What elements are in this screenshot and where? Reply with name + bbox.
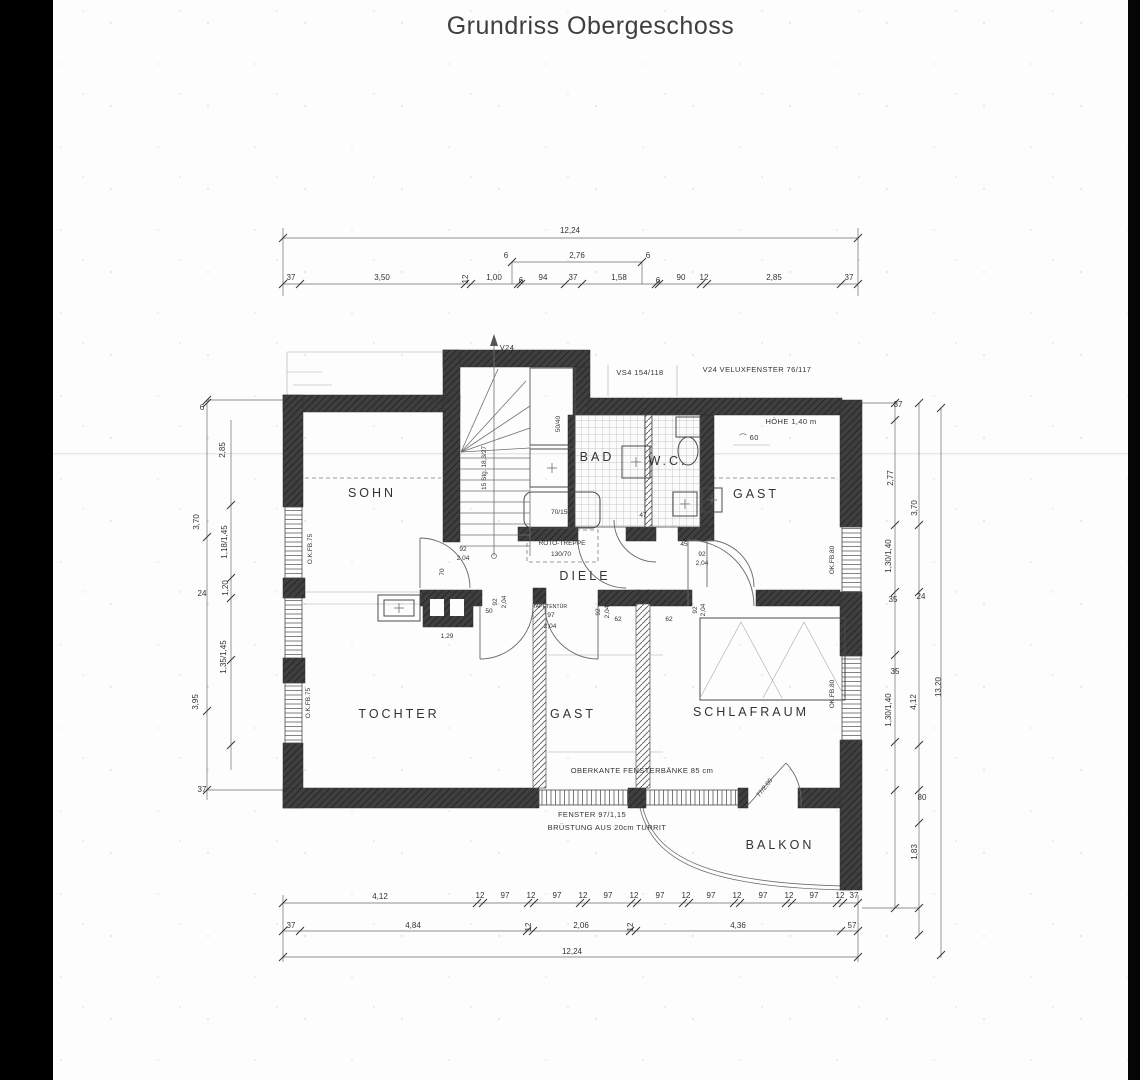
dim-label: 6 <box>656 276 661 285</box>
dim-label: 6 <box>504 251 509 260</box>
dim-label: 12 <box>836 891 845 900</box>
annotation-label: BRÜSTUNG AUS 20cm TURRIT <box>548 823 667 832</box>
room-label-diele: DIELE <box>559 569 610 583</box>
dim-label: 12 <box>476 891 485 900</box>
tiled-floor <box>575 415 645 527</box>
dim-label: 6 <box>519 276 524 285</box>
dim-label: 1,30/1,40 <box>884 539 893 573</box>
dim-label: 50/40 <box>555 415 562 432</box>
dim-label: 1,35/1,45 <box>219 640 228 674</box>
annotation-label: 50/60 <box>431 396 452 405</box>
window-radiator <box>285 507 302 578</box>
dim-label: O.K.FB.75 <box>305 687 312 718</box>
dim-label: 6 <box>646 251 651 260</box>
dim-label: 12 <box>700 273 709 282</box>
room-label-wc: W.C. <box>648 454 687 468</box>
dim-label: 130/70 <box>551 551 571 558</box>
room-label-schlafraum: SCHLAFRAUM <box>693 705 809 719</box>
dim-label: 2,04 <box>457 555 470 562</box>
dim-label: 37 <box>845 273 854 282</box>
dim-label: 37 <box>287 921 296 930</box>
dim-label: 2,04 <box>544 623 557 630</box>
dim-label: 6 <box>200 403 205 412</box>
dim-label: 12,24 <box>562 947 583 956</box>
dim-label: 35 <box>891 667 900 676</box>
dim-label: O.K.FB.75 <box>307 533 314 564</box>
window-radiator <box>842 527 861 592</box>
dim-label: 12 <box>579 891 588 900</box>
dim-label: 15 Stg. 18,3/27 <box>481 446 488 490</box>
dim-label: 37 <box>287 273 296 282</box>
dim-label: 37 <box>569 273 578 282</box>
dim-label: 37 <box>894 400 903 409</box>
dim-label: 97 <box>707 891 716 900</box>
floorplan-drawing: 50/60V24VS4 154/118V24 VELUXFENSTER 76/1… <box>0 0 1140 1080</box>
dim-label: 90 <box>677 273 686 282</box>
annotation-label: OBERKANTE FENSTERBÄNKE 85 cm <box>571 766 713 775</box>
dim-label: 97 <box>810 891 819 900</box>
dim-label: 12 <box>630 891 639 900</box>
dim-label: 57 <box>848 921 857 930</box>
dim-label: 12 <box>785 891 794 900</box>
dim-label: 2,04 <box>501 595 508 608</box>
dim-label: 1,83 <box>910 844 919 860</box>
room-label-tochter: TOCHTER <box>358 707 439 721</box>
dim-label: 97 <box>501 891 510 900</box>
dim-label: OK.FB.80 <box>829 545 836 574</box>
dim-label: 2,04 <box>700 603 707 616</box>
dim-label: 94 <box>539 273 548 282</box>
dim-label: 24 <box>917 592 926 601</box>
dim-label: 35 <box>889 595 898 604</box>
dim-label: OK.FB.80 <box>829 679 836 708</box>
annotation-label: TAPETENTÜR <box>533 603 567 610</box>
dim-label: 2,04 <box>604 605 611 618</box>
dim-label: 92 <box>459 546 467 553</box>
window-radiator <box>285 683 302 743</box>
dim-label: 97 <box>656 891 665 900</box>
dim-label: 13,20 <box>934 676 943 697</box>
room-label-gast: GAST <box>733 487 779 501</box>
paper-speckle <box>53 0 1128 1080</box>
room-label-gast: GAST <box>550 707 596 721</box>
dim-label: 70 <box>439 568 446 576</box>
dim-label: 12 <box>682 891 691 900</box>
dim-label: 3,95 <box>191 694 200 710</box>
dim-label: 2,06 <box>573 921 589 930</box>
dim-label: 12 <box>461 274 470 283</box>
dim-label: 92 <box>698 551 706 558</box>
annotation-label: V24 <box>500 343 515 352</box>
annotation-label: V24 VELUXFENSTER 76/117 <box>703 365 812 374</box>
dim-label: 12 <box>524 922 533 931</box>
dim-label: 37 <box>198 785 207 794</box>
dim-label: 50 <box>485 608 493 615</box>
dim-label: 47 <box>639 512 647 519</box>
dim-label: 62 <box>614 616 622 623</box>
room-label-balkon: BALKON <box>746 838 815 852</box>
dim-label: 3,70 <box>910 500 919 516</box>
dim-label: 12 <box>527 891 536 900</box>
room-label-sohn: SOHN <box>348 486 396 500</box>
window-radiator <box>285 598 302 658</box>
dim-label: 92 <box>595 608 602 616</box>
dim-label: 4,36 <box>730 921 746 930</box>
dim-label: 4,12 <box>909 694 918 710</box>
dim-label: 1,30/1,40 <box>884 693 893 727</box>
dim-label: 92 <box>492 598 499 606</box>
dim-label: 70/150 <box>551 509 571 516</box>
window-radiator <box>539 790 628 805</box>
dim-label: 62 <box>665 616 673 623</box>
window-radiator <box>646 790 738 805</box>
dim-label: 80 <box>918 793 927 802</box>
annotation-label: FENSTER 97/1,15 <box>558 810 626 819</box>
dim-label: 2,77 <box>886 470 895 486</box>
dim-label: 1,20 <box>221 580 230 596</box>
dim-label: 37 <box>850 891 859 900</box>
annotation-label: HÖHE 1,40 m <box>765 417 816 426</box>
dim-label: 1,58 <box>611 273 627 282</box>
dim-label: 12 <box>626 922 635 931</box>
dim-label: 97 <box>604 891 613 900</box>
dim-label: 1,00 <box>486 273 502 282</box>
dim-label: 12 <box>733 891 742 900</box>
room-label-bad: BAD <box>580 450 615 464</box>
annotation-label: ⌒ 60 <box>739 433 759 442</box>
dim-label: 1,18/1,45 <box>220 525 229 559</box>
dim-label: 1,29 <box>441 633 454 640</box>
dim-label: 45 <box>680 541 688 548</box>
scanned-floorplan-page: Grundriss Obergeschoss <box>0 0 1140 1080</box>
dim-label: 2,85 <box>766 273 782 282</box>
dim-label: 97 <box>547 612 555 619</box>
dim-label: ROTO-TREPPE <box>539 540 586 547</box>
dim-label: 3,70 <box>192 514 201 530</box>
dim-label: 4,84 <box>405 921 421 930</box>
dim-label: 2,76 <box>569 251 585 260</box>
dim-label: 12,24 <box>560 226 581 235</box>
dim-label: 2,04 <box>696 560 709 567</box>
dim-label: 97 <box>553 891 562 900</box>
dim-label: 97 <box>759 891 768 900</box>
dim-label: 4,12 <box>372 892 388 901</box>
dim-label: 2,85 <box>218 442 227 458</box>
dim-label: 3,50 <box>374 273 390 282</box>
dim-label: 92 <box>692 606 699 614</box>
annotation-label: VS4 154/118 <box>616 368 663 377</box>
dim-label: 24 <box>198 589 207 598</box>
